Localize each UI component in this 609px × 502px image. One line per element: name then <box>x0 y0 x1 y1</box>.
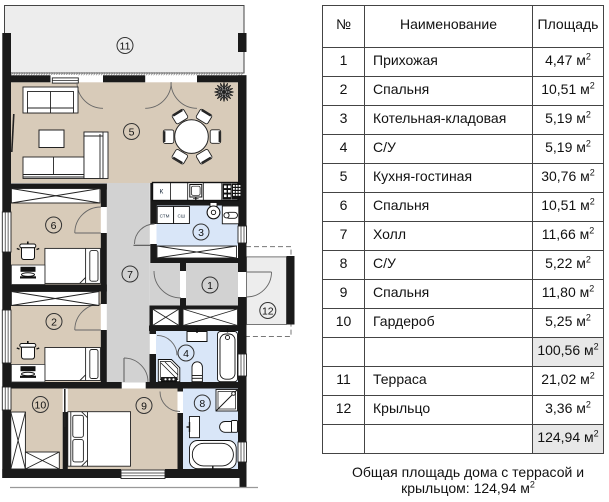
svg-text:6: 6 <box>51 220 57 232</box>
svg-text:5: 5 <box>129 126 135 138</box>
svg-text:7: 7 <box>127 269 133 281</box>
svg-text:СШ: СШ <box>178 214 186 219</box>
svg-text:СТМ: СТМ <box>160 214 170 219</box>
svg-text:10: 10 <box>35 399 47 411</box>
svg-text:11: 11 <box>120 40 131 52</box>
svg-text:К: К <box>160 189 164 196</box>
svg-text:8: 8 <box>199 398 205 410</box>
svg-text:3: 3 <box>198 227 204 239</box>
svg-text:12: 12 <box>262 305 274 317</box>
svg-text:4: 4 <box>183 348 189 360</box>
svg-text:9: 9 <box>141 400 147 412</box>
svg-text:2: 2 <box>51 316 57 328</box>
svg-text:1: 1 <box>207 280 213 292</box>
